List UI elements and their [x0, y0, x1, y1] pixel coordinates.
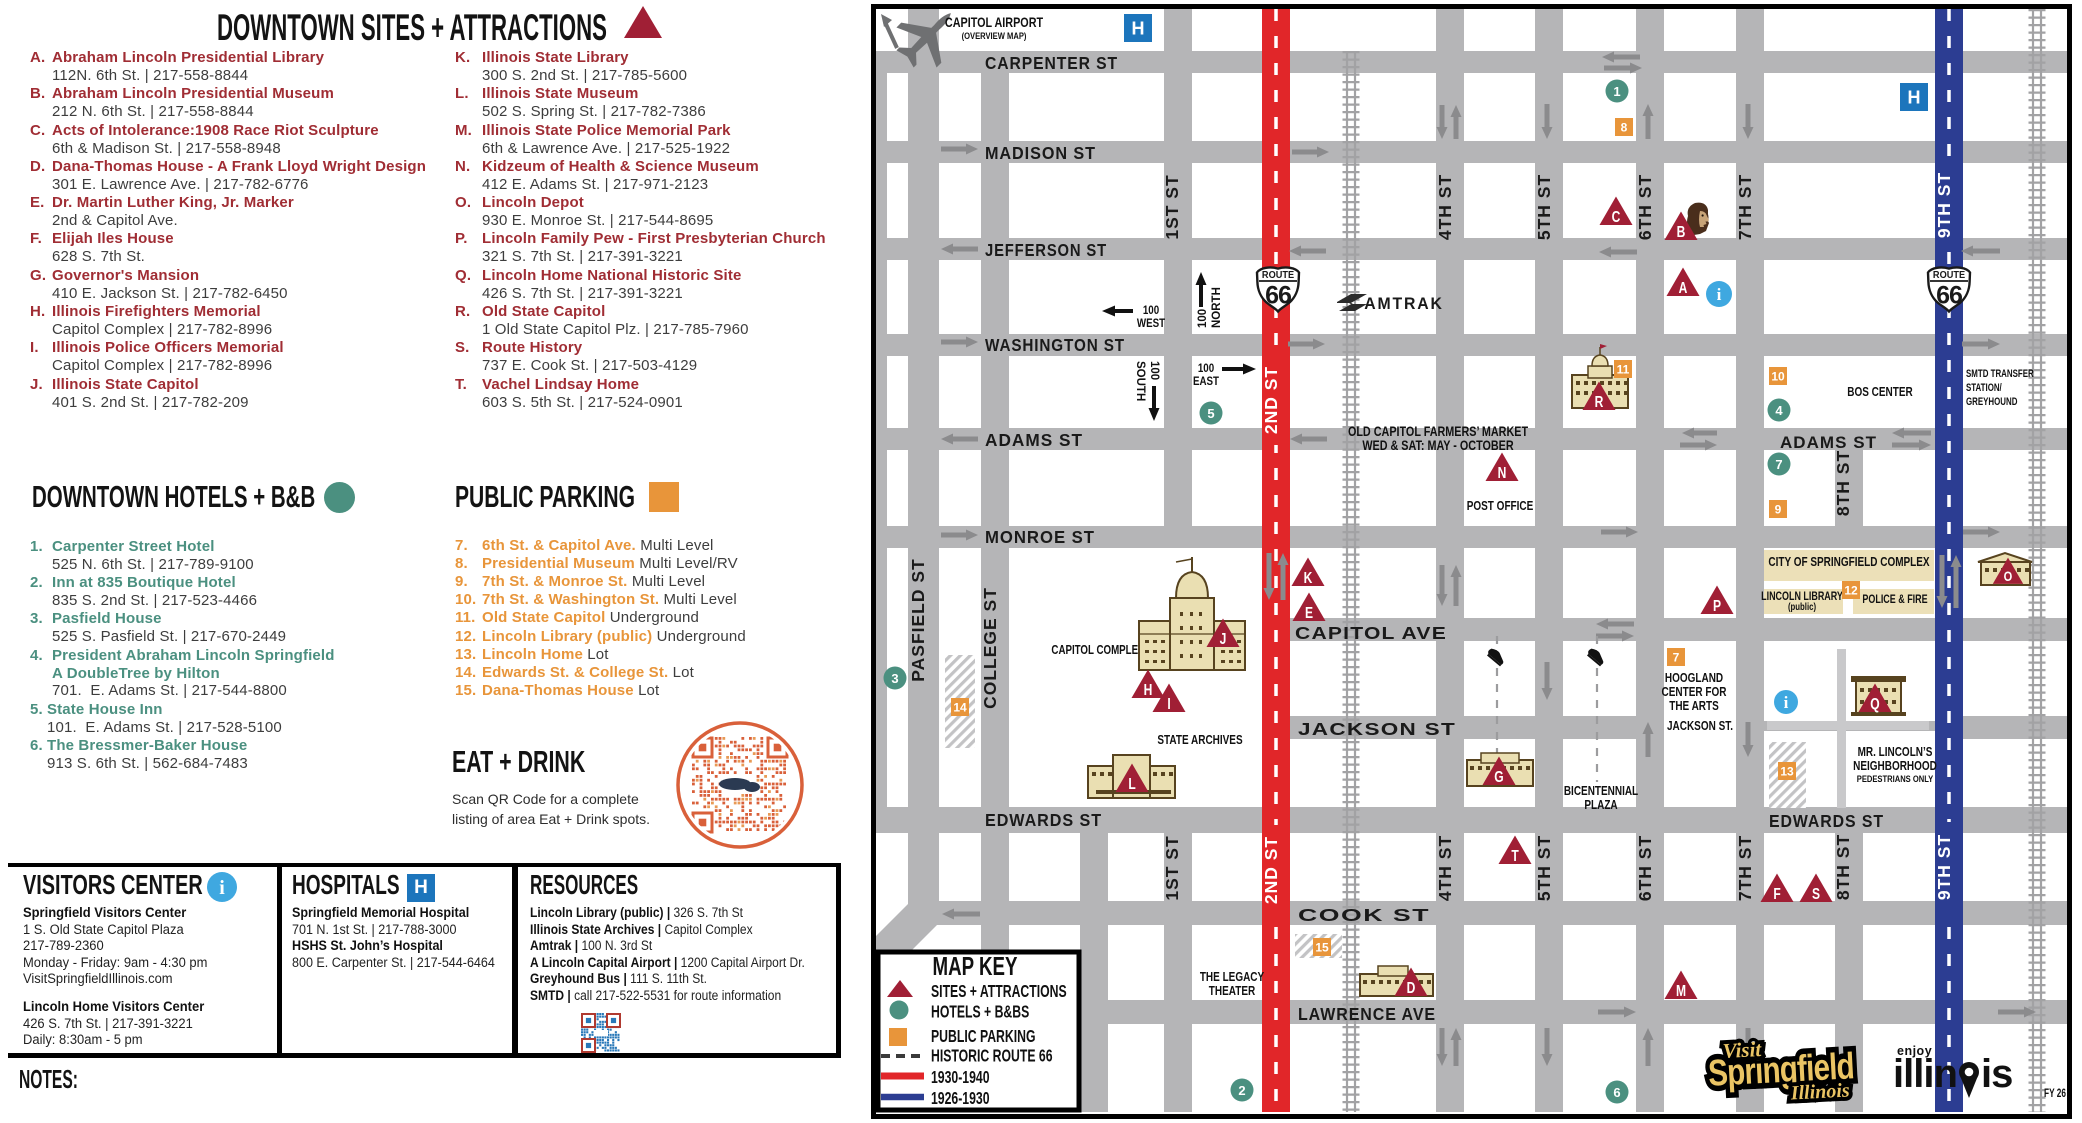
svg-text:THE LEGACY: THE LEGACY — [1200, 971, 1265, 984]
svg-text:L: L — [1128, 775, 1136, 793]
svg-text:PASFIELD ST: PASFIELD ST — [908, 558, 928, 681]
svg-text:5TH ST: 5TH ST — [1534, 835, 1554, 901]
svg-text:STATION/: STATION/ — [1966, 382, 2002, 395]
svg-text:SMTD TRANSFER: SMTD TRANSFER — [1966, 368, 2034, 381]
svg-text:C: C — [1612, 208, 1621, 226]
svg-text:66: 66 — [1936, 282, 1962, 310]
svg-text:STATE ARCHIVES: STATE ARCHIVES — [1157, 734, 1243, 747]
svg-text:2ND ST: 2ND ST — [1261, 366, 1281, 434]
svg-text:7: 7 — [1775, 457, 1782, 472]
svg-text:POST OFFICE: POST OFFICE — [1467, 500, 1534, 513]
svg-text:POLICE & FIRE: POLICE & FIRE — [1862, 594, 1927, 606]
svg-text:R: R — [1595, 393, 1604, 411]
svg-text:AMTRAK: AMTRAK — [1364, 295, 1444, 314]
svg-text:10: 10 — [1771, 370, 1785, 384]
svg-text:O: O — [2004, 568, 2013, 585]
svg-text:JACKSON ST.: JACKSON ST. — [1667, 720, 1733, 733]
svg-text:S: S — [1812, 885, 1820, 903]
svg-text:(OVERVIEW MAP): (OVERVIEW MAP) — [962, 30, 1027, 41]
svg-text:7TH ST: 7TH ST — [1735, 835, 1755, 901]
svg-text:WEST: WEST — [1137, 317, 1166, 330]
svg-text:NORTH: NORTH — [1211, 287, 1223, 328]
svg-text:1ST ST: 1ST ST — [1162, 835, 1182, 900]
svg-text:I: I — [1167, 695, 1170, 713]
svg-text:MR. LINCOLN’S: MR. LINCOLN’S — [1858, 746, 1933, 759]
svg-text:ADAMS ST: ADAMS ST — [1780, 434, 1877, 452]
svg-text:7: 7 — [1673, 651, 1680, 665]
svg-text:SITES + ATTRACTIONS: SITES + ATTRACTIONS — [931, 982, 1067, 1002]
svg-text:COOK ST: COOK ST — [1298, 905, 1430, 925]
svg-text:EDWARDS ST: EDWARDS ST — [1769, 811, 1884, 831]
svg-text:7TH ST: 7TH ST — [1735, 174, 1755, 240]
svg-text:13: 13 — [1780, 765, 1794, 779]
svg-text:4: 4 — [1775, 403, 1783, 418]
svg-text:M: M — [1676, 982, 1686, 1000]
svg-text:PEDESTRIANS ONLY: PEDESTRIANS ONLY — [1857, 773, 1934, 784]
svg-text:9: 9 — [1775, 503, 1782, 517]
svg-text:Visit: Visit — [1722, 1037, 1763, 1063]
svg-text:9TH ST: 9TH ST — [1934, 834, 1954, 900]
svg-text:ROUTE: ROUTE — [1262, 270, 1295, 281]
svg-text:F: F — [1773, 885, 1780, 903]
svg-text:THEATER: THEATER — [1209, 985, 1255, 998]
svg-text:THE ARTS: THE ARTS — [1669, 700, 1719, 713]
svg-text:BOS CENTER: BOS CENTER — [1847, 386, 1912, 399]
svg-text:5: 5 — [1207, 406, 1214, 421]
svg-text:H: H — [1144, 681, 1153, 699]
svg-text:JACKSON ST: JACKSON ST — [1298, 719, 1456, 739]
svg-text:Q: Q — [1870, 695, 1880, 713]
svg-text:D: D — [1407, 979, 1416, 997]
svg-text:12: 12 — [1844, 584, 1858, 598]
svg-text:NEIGHBORHOOD: NEIGHBORHOOD — [1853, 760, 1937, 773]
svg-text:5TH ST: 5TH ST — [1534, 174, 1554, 240]
svg-text:BICENTENNIAL: BICENTENNIAL — [1564, 785, 1638, 798]
svg-text:is: is — [1981, 1052, 2012, 1096]
svg-text:HOOGLAND: HOOGLAND — [1665, 672, 1723, 685]
svg-text:1: 1 — [1613, 84, 1620, 99]
svg-text:SOUTH: SOUTH — [1134, 361, 1146, 401]
svg-text:K: K — [1304, 569, 1313, 587]
svg-text:15: 15 — [1315, 941, 1329, 955]
svg-text:N: N — [1498, 464, 1507, 482]
svg-text:LAWRENCE AVE: LAWRENCE AVE — [1298, 1004, 1436, 1024]
svg-text:FY 26: FY 26 — [2044, 1088, 2066, 1101]
svg-text:illin: illin — [1893, 1052, 1957, 1096]
svg-text:HOTELS + B&BS: HOTELS + B&BS — [931, 1002, 1029, 1022]
svg-text:PUBLIC PARKING: PUBLIC PARKING — [931, 1027, 1036, 1047]
svg-text:EDWARDS ST: EDWARDS ST — [985, 810, 1102, 830]
svg-text:6TH ST: 6TH ST — [1635, 174, 1655, 240]
svg-text:100: 100 — [1143, 304, 1159, 317]
svg-text:B: B — [1677, 223, 1686, 241]
svg-text:11: 11 — [1617, 363, 1630, 377]
svg-text:CARPENTER ST: CARPENTER ST — [985, 53, 1118, 73]
svg-text:8TH ST: 8TH ST — [1833, 450, 1853, 516]
svg-text:GREYHOUND: GREYHOUND — [1966, 396, 2018, 409]
svg-text:PLAZA: PLAZA — [1584, 799, 1617, 812]
svg-text:14: 14 — [953, 701, 967, 715]
svg-text:JEFFERSON ST: JEFFERSON ST — [985, 240, 1107, 260]
svg-text:P: P — [1713, 597, 1721, 615]
svg-text:1930-1940: 1930-1940 — [931, 1068, 990, 1088]
svg-text:CAPITOL COMPLEX: CAPITOL COMPLEX — [1051, 644, 1145, 657]
svg-text:T: T — [1511, 847, 1519, 865]
svg-text:9TH ST: 9TH ST — [1934, 172, 1954, 238]
svg-text:CENTER FOR: CENTER FOR — [1662, 686, 1727, 699]
svg-text:i: i — [1717, 285, 1722, 304]
svg-text:MAP KEY: MAP KEY — [933, 951, 1018, 981]
svg-text:HISTORIC ROUTE 66: HISTORIC ROUTE 66 — [931, 1046, 1053, 1066]
svg-text:H: H — [1908, 88, 1921, 108]
svg-text:CAPITOL AIRPORT: CAPITOL AIRPORT — [945, 15, 1044, 30]
svg-text:6: 6 — [1613, 1085, 1620, 1100]
svg-text:H: H — [1132, 19, 1145, 39]
svg-text:4TH ST: 4TH ST — [1435, 174, 1455, 240]
svg-text:100: 100 — [1148, 361, 1160, 380]
svg-text:100: 100 — [1198, 362, 1214, 375]
svg-text:COLLEGE ST: COLLEGE ST — [980, 587, 1000, 709]
svg-text:G: G — [1494, 768, 1503, 786]
svg-text:A: A — [1679, 279, 1688, 297]
svg-text:WED & SAT: MAY - OCTOBER: WED & SAT: MAY - OCTOBER — [1362, 438, 1513, 453]
svg-text:WASHINGTON ST: WASHINGTON ST — [985, 335, 1125, 355]
svg-text:(public): (public) — [1788, 601, 1816, 612]
svg-text:Illinois: Illinois — [1789, 1079, 1850, 1104]
svg-text:4TH ST: 4TH ST — [1435, 835, 1455, 901]
svg-text:2ND ST: 2ND ST — [1261, 836, 1281, 904]
svg-text:1926-1930: 1926-1930 — [931, 1089, 990, 1109]
svg-text:6TH ST: 6TH ST — [1635, 835, 1655, 901]
svg-text:J: J — [1220, 630, 1227, 648]
svg-text:MONROE ST: MONROE ST — [985, 527, 1095, 547]
svg-text:CAPITOL AVE: CAPITOL AVE — [1295, 623, 1447, 643]
svg-text:66: 66 — [1265, 282, 1291, 310]
svg-text:CITY OF SPRINGFIELD COMPLEX: CITY OF SPRINGFIELD COMPLEX — [1768, 556, 1930, 569]
svg-text:8TH ST: 8TH ST — [1833, 834, 1853, 900]
svg-text:ROUTE: ROUTE — [1933, 270, 1966, 281]
svg-text:E: E — [1305, 604, 1313, 622]
svg-text:MADISON ST: MADISON ST — [985, 143, 1096, 163]
svg-text:2: 2 — [1238, 1083, 1245, 1098]
svg-text:EAST: EAST — [1193, 375, 1219, 388]
svg-text:i: i — [1784, 693, 1789, 712]
svg-text:ADAMS ST: ADAMS ST — [985, 430, 1083, 450]
svg-text:1ST ST: 1ST ST — [1162, 174, 1182, 239]
svg-text:3: 3 — [891, 671, 898, 686]
svg-text:100: 100 — [1197, 309, 1209, 328]
svg-text:8: 8 — [1621, 121, 1628, 135]
